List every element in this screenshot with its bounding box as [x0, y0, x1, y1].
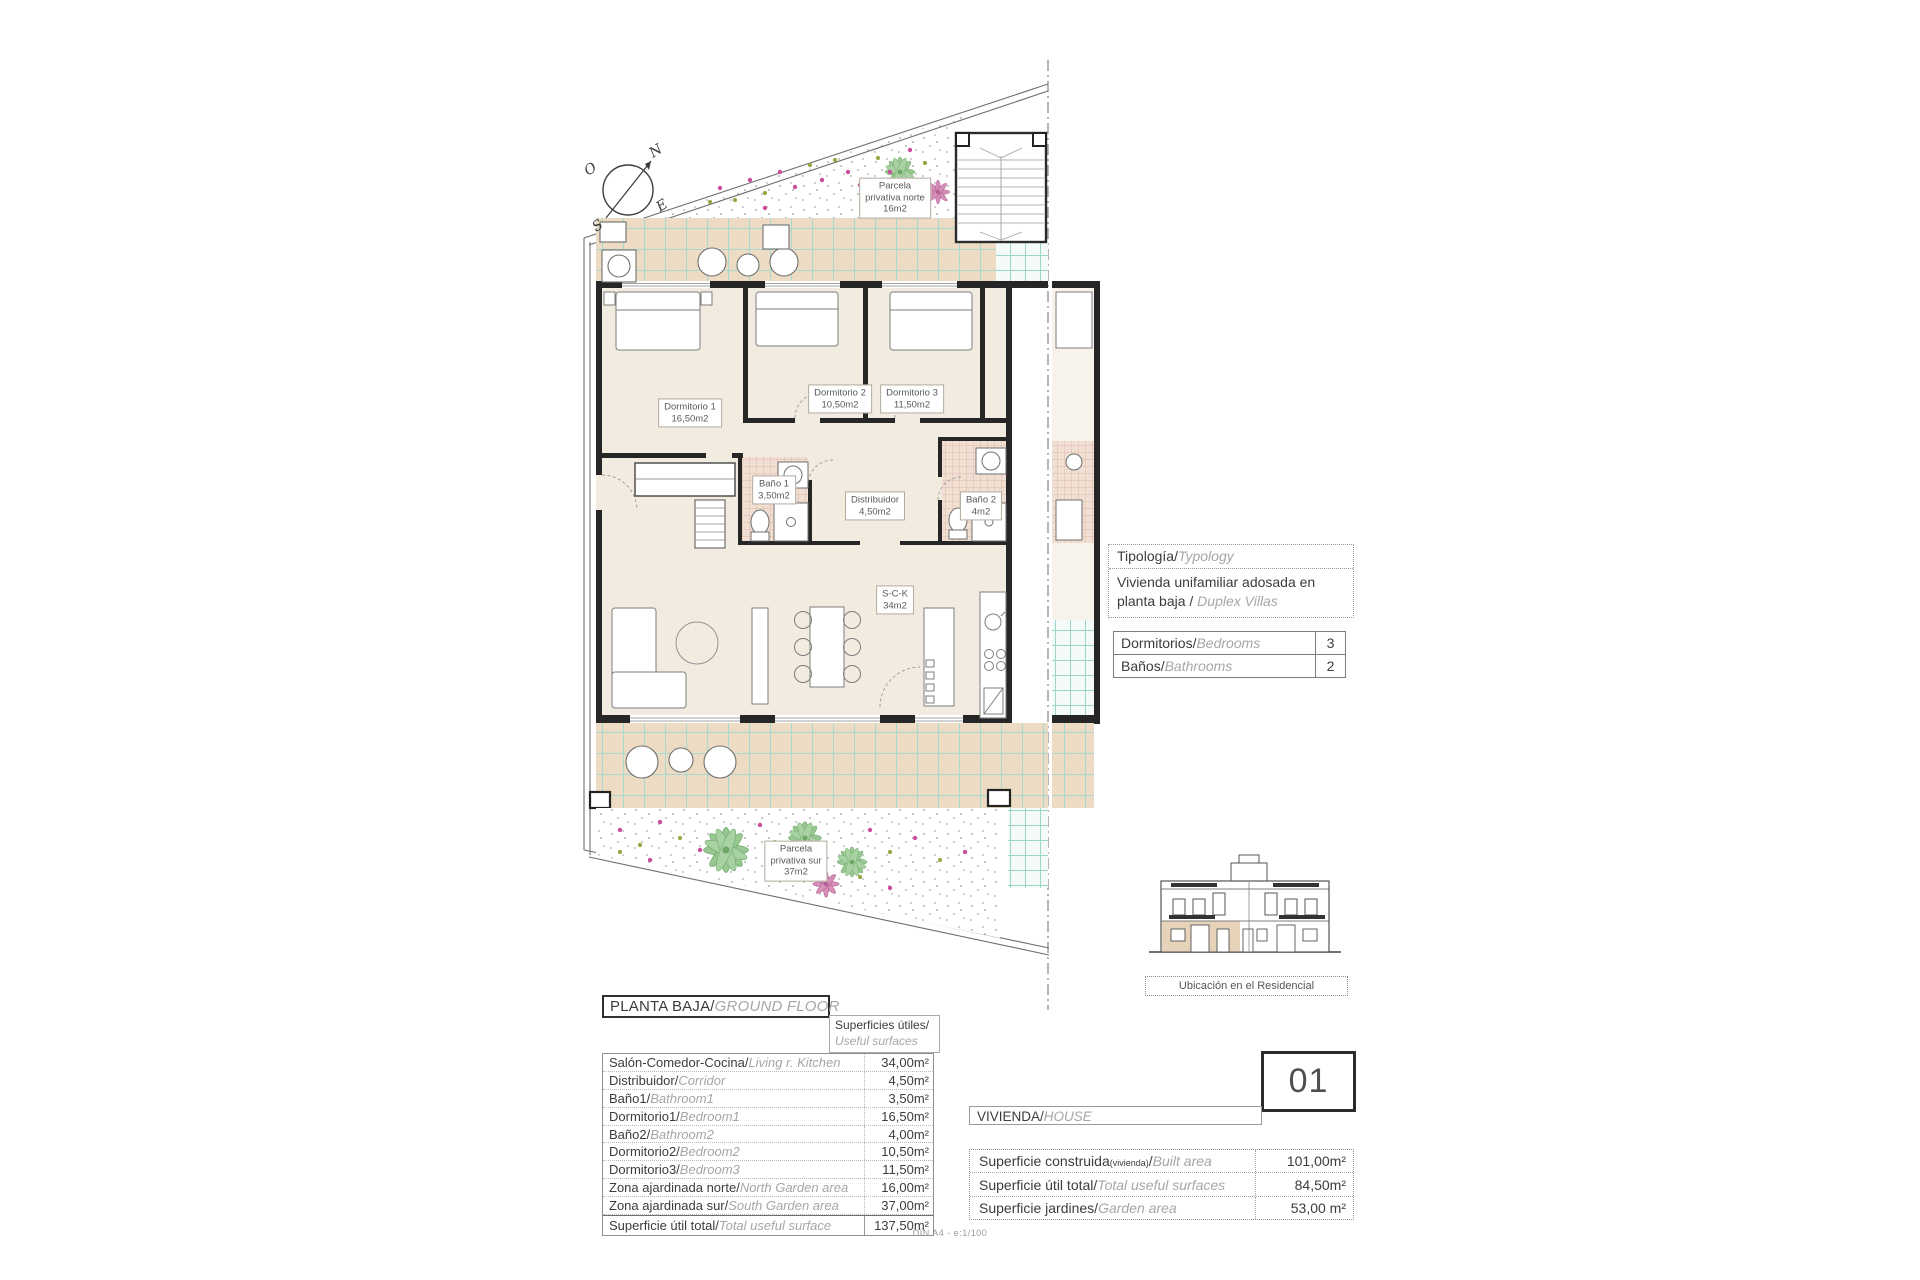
typology-body: Vivienda unifamiliar adosada en planta b… [1109, 569, 1353, 617]
table-row: Baño2/Bathroom2 4,00m² [603, 1126, 933, 1144]
neighbour-unit-fragment [1052, 281, 1100, 808]
north-terrace [596, 218, 996, 285]
bedroom-windows [622, 281, 957, 288]
label-dormitorio1: Dormitorio 116,50m2 [658, 398, 722, 427]
table-row: Superficie útil total/Total useful surfa… [970, 1172, 1353, 1195]
south-patio-tiles [1008, 808, 1048, 888]
label-bano1: Baño 13,50m2 [752, 475, 796, 504]
dining-table [810, 607, 844, 687]
label-parcela-sur: Parcelaprivativa sur37m2 [764, 841, 827, 882]
floor-plan-sheet: N O E S Parcelaprivativa norte16m2 Parce… [0, 0, 1920, 1280]
floor-plan: N O E S Parcelaprivativa norte16m2 Parce… [560, 60, 1120, 1020]
table-row: Zona ajardinada sur/South Garden area 37… [603, 1197, 933, 1215]
surfaces-table: Salón-Comedor-Cocina/Living r. Kitchen 3… [602, 1053, 934, 1236]
pillar [590, 792, 610, 808]
table-row: Salón-Comedor-Cocina/Living r. Kitchen 3… [603, 1054, 933, 1072]
tv-unit [752, 608, 768, 704]
label-sck: S-C-K34m2 [876, 585, 914, 614]
palm-icon [703, 827, 749, 873]
svg-text:N: N [646, 141, 666, 162]
pillar [988, 790, 1010, 806]
table-row: Zona ajardinada norte/North Garden area … [603, 1179, 933, 1197]
label-dormitorio3: Dormitorio 311,50m2 [880, 384, 944, 413]
label-parcela-norte: Parcelaprivativa norte16m2 [859, 178, 931, 219]
floor-plan-drawing: N O E S [560, 60, 1120, 1020]
table-row: Dormitorios/Bedrooms 3 [1114, 632, 1345, 654]
unit-number-badge: 01 [1261, 1051, 1356, 1112]
label-dormitorio2: Dormitorio 210,50m2 [808, 384, 872, 413]
table-row: Baños/Bathrooms 2 [1114, 654, 1345, 677]
table-row: Superficie construida(vivienda)/Built ar… [970, 1150, 1353, 1172]
beds [604, 292, 972, 350]
counts-table: Dormitorios/Bedrooms 3 Baños/Bathrooms 2 [1113, 631, 1346, 678]
house-label-bar: VIVIENDA/HOUSE [969, 1106, 1262, 1125]
stair-patio-tiles [996, 242, 1048, 285]
label-bano2: Baño 24m2 [960, 491, 1002, 520]
table-row: Dormitorio1/Bedroom1 16,50m² [603, 1108, 933, 1126]
location-caption: Ubicación en el Residencial [1145, 976, 1348, 996]
elevation-drawing [1147, 849, 1343, 969]
built-areas-table: Superficie construida(vivienda)/Built ar… [969, 1149, 1354, 1220]
exterior-staircase [956, 133, 1046, 242]
table-row: Distribuidor/Corridor 4,50m² [603, 1072, 933, 1090]
typology-header: Tipología/Typology [1109, 545, 1353, 569]
label-distribuidor: Distribuidor4,50m2 [845, 491, 905, 520]
palm-icon [837, 847, 868, 878]
sheet-scale-note: DIN A4 - e:1/100 [760, 1228, 1140, 1238]
typology-box: Tipología/Typology Vivienda unifamiliar … [1108, 544, 1354, 618]
svg-text:O: O [581, 159, 600, 179]
table-row: Superficie jardines/Garden area 53,00 m² [970, 1196, 1353, 1219]
useful-surfaces-header: Superficies útiles/ Useful surfaces [829, 1015, 940, 1053]
table-row: Dormitorio3/Bedroom3 11,50m² [603, 1161, 933, 1179]
table-row: Dormitorio2/Bedroom2 10,50m² [603, 1143, 933, 1161]
south-terrace [596, 723, 1048, 808]
page-title: PLANTA BAJA/GROUND FLOOR [602, 995, 830, 1018]
table-row: Baño1/Bathroom1 3,50m² [603, 1090, 933, 1108]
